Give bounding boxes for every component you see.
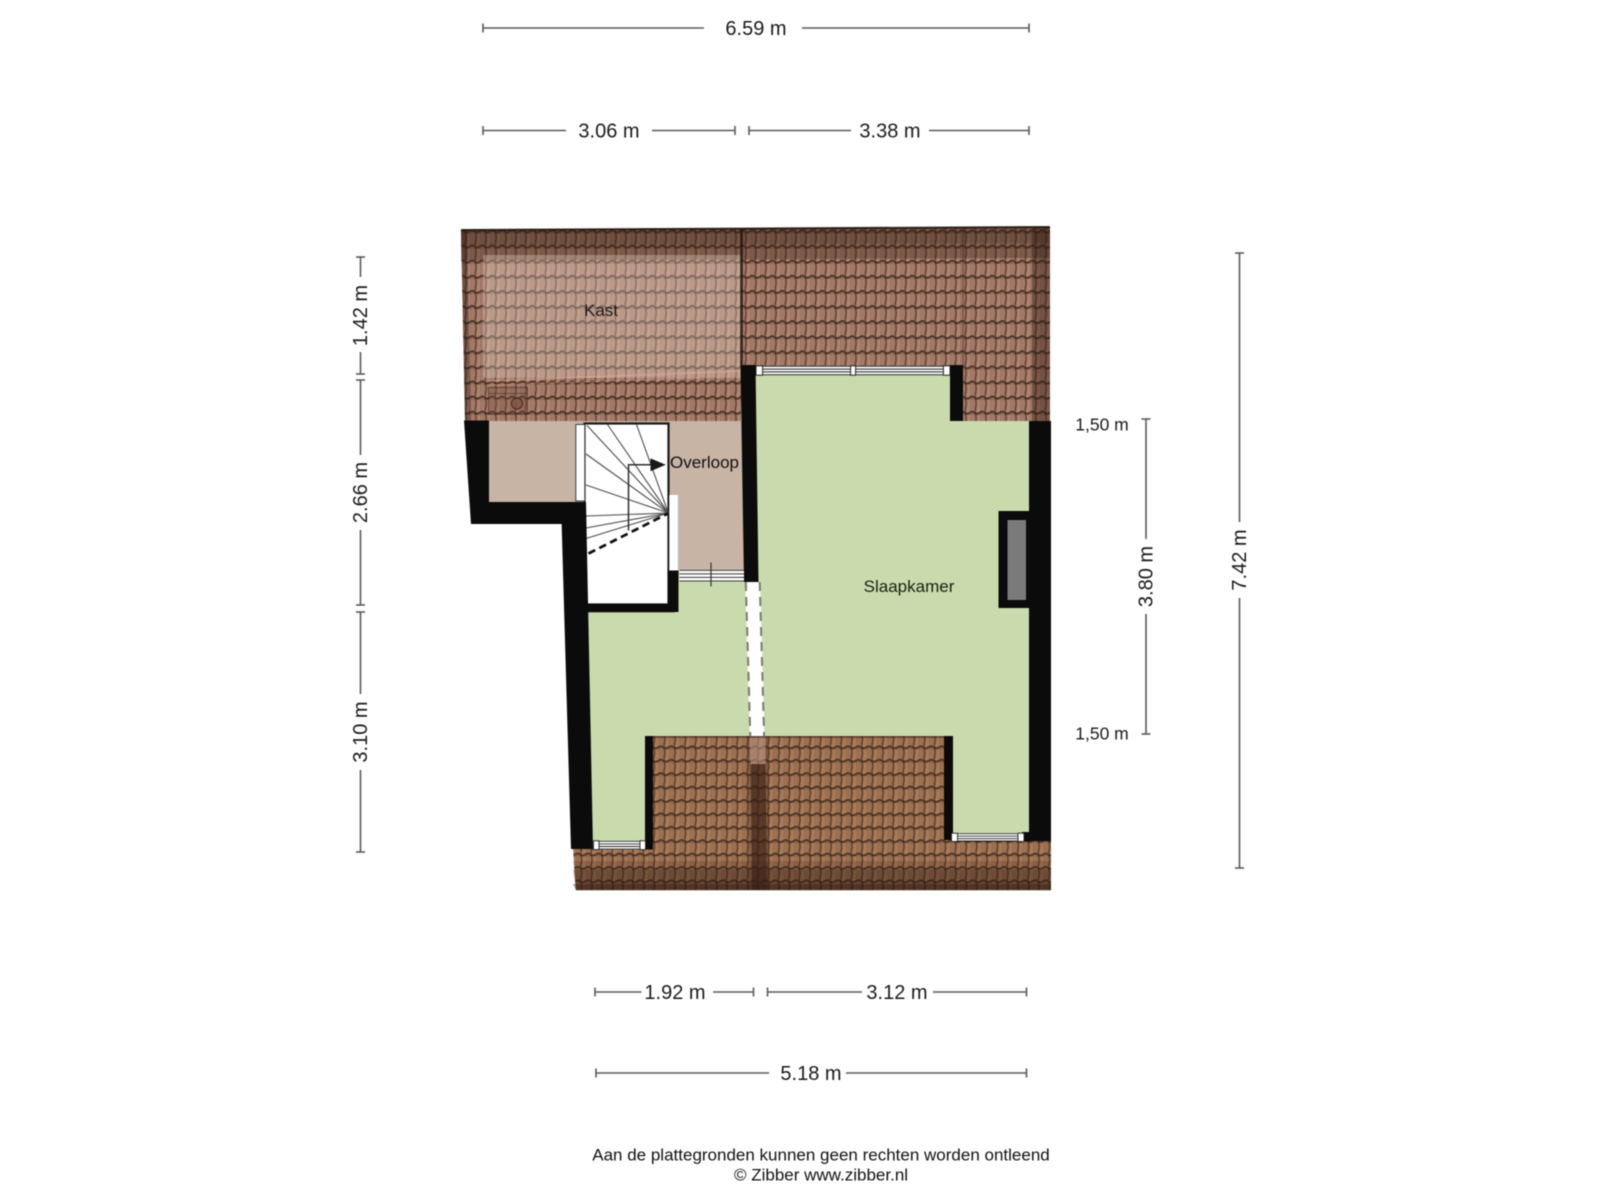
svg-text:3.10 m: 3.10 m	[350, 701, 372, 762]
svg-text:2.66 m: 2.66 m	[350, 462, 372, 523]
svg-text:Slaapkamer: Slaapkamer	[864, 577, 955, 596]
svg-text:© Zibber www.zibber.nl: © Zibber www.zibber.nl	[734, 1166, 908, 1185]
svg-text:6.59 m: 6.59 m	[725, 18, 786, 40]
svg-text:Kast: Kast	[584, 301, 618, 320]
svg-text:1,50 m: 1,50 m	[1075, 724, 1129, 744]
svg-text:3.80 m: 3.80 m	[1136, 546, 1158, 607]
svg-text:3.06 m: 3.06 m	[578, 120, 639, 142]
svg-text:Aan de plattegronden kunnen ge: Aan de plattegronden kunnen geen rechten…	[592, 1146, 1049, 1165]
svg-text:3.38 m: 3.38 m	[859, 120, 920, 142]
svg-text:5.18 m: 5.18 m	[780, 1063, 841, 1085]
svg-text:Overloop: Overloop	[670, 453, 739, 472]
svg-text:1,50 m: 1,50 m	[1075, 415, 1129, 435]
svg-text:7.42 m: 7.42 m	[1229, 529, 1251, 590]
svg-text:1.42 m: 1.42 m	[350, 285, 372, 346]
svg-text:3.12 m: 3.12 m	[866, 982, 927, 1004]
svg-text:1.92 m: 1.92 m	[644, 982, 705, 1004]
